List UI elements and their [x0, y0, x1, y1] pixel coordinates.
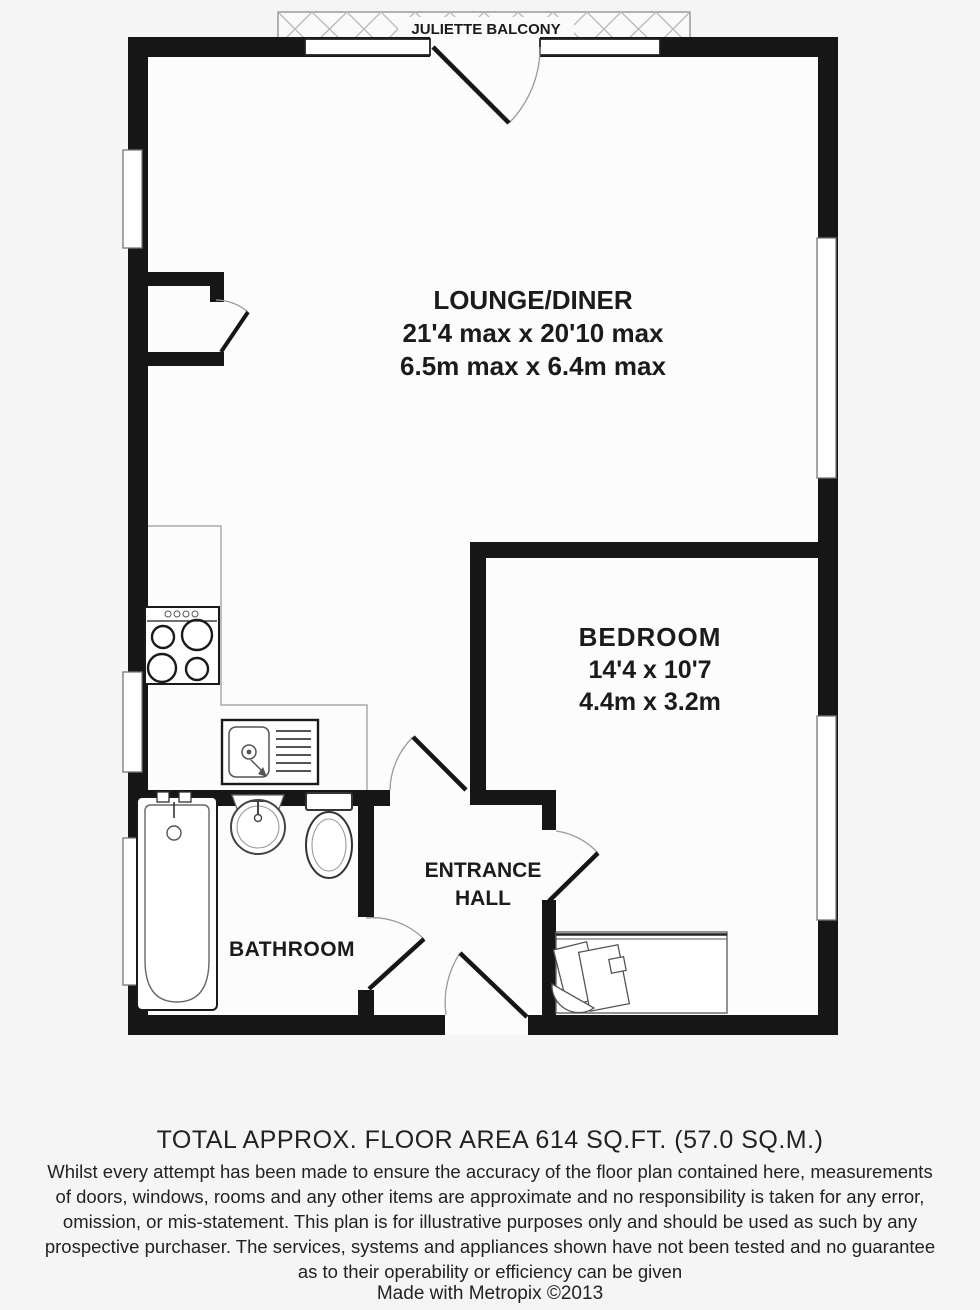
- entrance-hall-label-line1: ENTRANCE: [425, 859, 542, 882]
- bathroom-label: BATHROOM: [229, 938, 355, 961]
- stove-icon: [145, 607, 219, 684]
- washbasin-icon: [231, 795, 285, 854]
- balcony-label: JULIETTE BALCONY: [411, 21, 560, 38]
- total-floor-area: TOTAL APPROX. FLOOR AREA 614 SQ.FT. (57.…: [0, 1126, 980, 1155]
- window-left-kitchen: [123, 672, 142, 772]
- hall-wall-right-upper: [542, 790, 556, 830]
- disclaimer-line: of doors, windows, rooms and any other i…: [0, 1184, 980, 1209]
- bathtub-icon: [137, 792, 217, 1010]
- desk-and-chair-icon: [552, 932, 727, 1013]
- bedroom-label: BEDROOM: [579, 622, 722, 652]
- lounge-dims-metric: 6.5m max x 6.4m max: [400, 351, 666, 381]
- bedroom-wall-top: [470, 542, 838, 558]
- metropix-credit: Made with Metropix ©2013: [0, 1283, 980, 1305]
- bathroom-wall-right-upper: [358, 806, 374, 917]
- hall-wall-right-lower: [542, 900, 556, 1015]
- toilet-icon: [306, 793, 352, 878]
- floor-plan: JULIETTE BALCONY: [0, 0, 980, 1120]
- disclaimer-line: Whilst every attempt has been made to en…: [0, 1159, 980, 1184]
- disclaimer-line: as to their operability or efficiency ca…: [0, 1259, 980, 1284]
- disclaimer-line: omission, or mis-statement. This plan is…: [0, 1209, 980, 1234]
- front-door-opening: [445, 1015, 528, 1035]
- lounge-dims-imperial: 21'4 max x 20'10 max: [402, 318, 664, 348]
- window-left-lounge: [123, 150, 142, 248]
- bathroom-wall-right-lower: [358, 990, 374, 1015]
- kitchen-sink-icon: [222, 720, 318, 784]
- window-top-left: [305, 39, 430, 55]
- entrance-hall-label-line2: HALL: [455, 887, 511, 910]
- balcony-door-opening: [430, 37, 540, 57]
- disclaimer-line: prospective purchaser. The services, sys…: [0, 1234, 980, 1259]
- window-top-right: [540, 39, 660, 55]
- closet-wall-side: [210, 272, 224, 302]
- bedroom-wall-left: [470, 542, 486, 800]
- window-right-bedroom: [817, 716, 836, 920]
- lounge-label: LOUNGE/DINER: [433, 285, 633, 315]
- disclaimer-text: Whilst every attempt has been made to en…: [0, 1159, 980, 1284]
- bedroom-dims-metric: 4.4m x 3.2m: [579, 688, 721, 716]
- closet-wall-bottom: [148, 352, 224, 366]
- window-right-lounge: [817, 238, 836, 478]
- floorplan-page: JULIETTE BALCONY: [0, 0, 980, 1310]
- bedroom-dims-imperial: 14'4 x 10'7: [588, 656, 711, 684]
